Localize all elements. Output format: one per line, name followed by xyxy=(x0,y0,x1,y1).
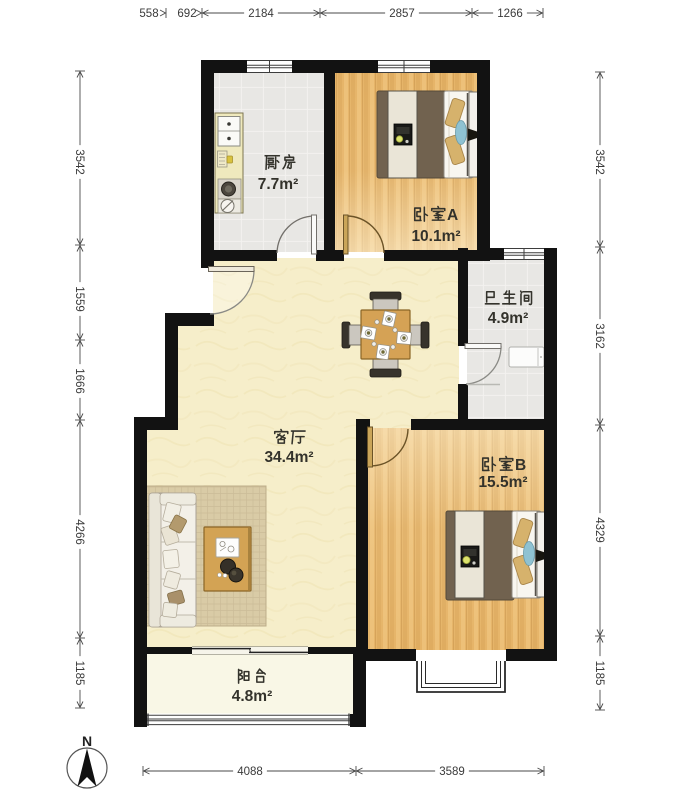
svg-text:1666: 1666 xyxy=(73,368,85,394)
svg-text:4329: 4329 xyxy=(593,517,605,543)
svg-text:A: A xyxy=(447,207,458,224)
svg-text:4.8m²: 4.8m² xyxy=(232,688,273,705)
svg-text:7.7m²: 7.7m² xyxy=(258,176,299,193)
svg-text:4088: 4088 xyxy=(237,766,263,778)
svg-text:1559: 1559 xyxy=(73,286,85,312)
svg-text:3162: 3162 xyxy=(593,323,605,349)
svg-text:558: 558 xyxy=(139,8,158,20)
svg-text:15.5m²: 15.5m² xyxy=(478,474,527,491)
svg-text:2857: 2857 xyxy=(389,8,415,20)
svg-text:3589: 3589 xyxy=(439,766,465,778)
svg-text:B: B xyxy=(515,457,526,474)
svg-text:34.4m²: 34.4m² xyxy=(264,449,313,466)
svg-text:1266: 1266 xyxy=(497,8,523,20)
svg-text:692: 692 xyxy=(177,8,196,20)
svg-text:1185: 1185 xyxy=(73,661,85,686)
svg-text:4.9m²: 4.9m² xyxy=(488,310,529,327)
svg-text:3542: 3542 xyxy=(593,149,605,175)
svg-text:2184: 2184 xyxy=(248,8,274,20)
svg-text:N: N xyxy=(82,733,92,749)
svg-text:3542: 3542 xyxy=(73,149,85,175)
svg-text:4266: 4266 xyxy=(73,519,85,545)
svg-text:10.1m²: 10.1m² xyxy=(411,228,460,245)
svg-text:1185: 1185 xyxy=(593,661,605,686)
